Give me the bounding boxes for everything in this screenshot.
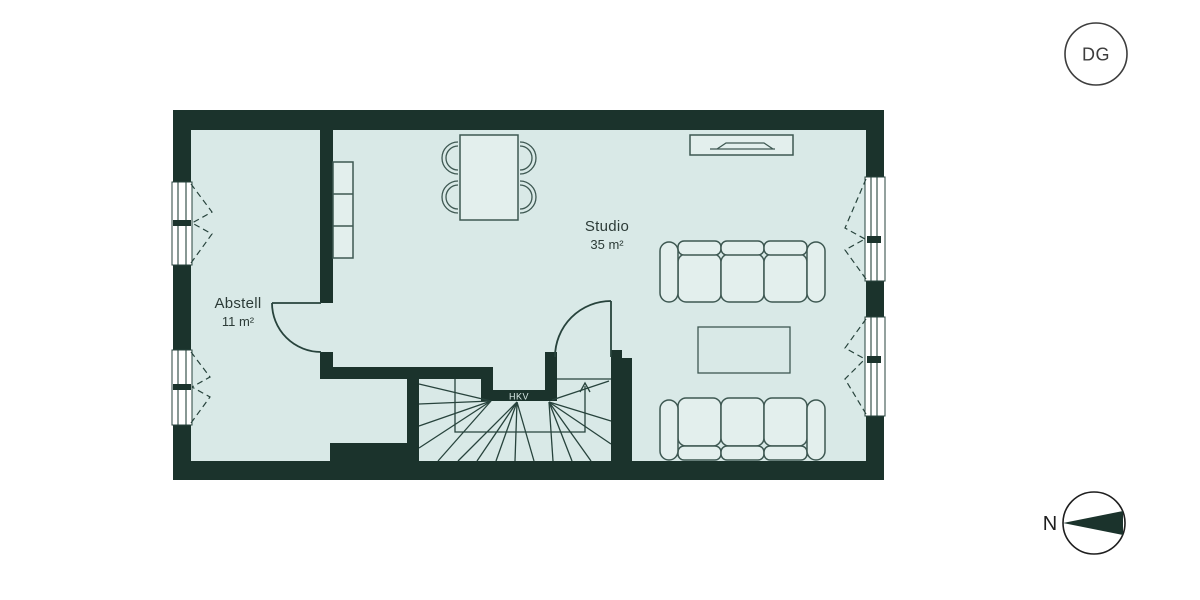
wall-divider-upper xyxy=(320,130,333,303)
sofa-seat-cushion xyxy=(764,254,807,302)
sofa-back-cushion xyxy=(721,241,764,255)
room-name: Abstell xyxy=(214,295,261,312)
sofa-seat-cushion xyxy=(678,254,721,302)
tall-cabinet xyxy=(333,162,353,258)
room-name: Studio xyxy=(585,218,629,235)
sofa-seat-cushion xyxy=(721,254,764,302)
sofa-bottom xyxy=(660,398,825,460)
wall-segment-right xyxy=(866,110,884,480)
window-mullion xyxy=(173,220,191,226)
sofa-seat-cushion xyxy=(721,398,764,446)
window-mullion xyxy=(867,356,881,363)
sofa-armrest xyxy=(807,242,825,302)
sofa-seat-cushion xyxy=(678,398,721,446)
wall-segment-bottom xyxy=(173,461,884,480)
sofa-back-cushion xyxy=(764,446,807,460)
floor-plan-canvas: HKV xyxy=(0,0,1200,600)
sofa-back-cushion xyxy=(764,241,807,255)
sideboard-tv xyxy=(690,135,793,155)
floor-badge-label: DG xyxy=(1082,45,1110,65)
sofa-armrest xyxy=(660,242,678,302)
sofa-back-cushion xyxy=(678,241,721,255)
room-area: 11 m² xyxy=(222,314,255,329)
floor-badge: DG xyxy=(1065,23,1127,85)
sofa-seat-cushion xyxy=(764,398,807,446)
north-label: N xyxy=(1043,513,1057,535)
wall-stair-top xyxy=(320,367,493,379)
sofa-back-cushion xyxy=(721,446,764,460)
compass: N xyxy=(1043,492,1125,554)
wall-door-jamb xyxy=(545,352,557,401)
wall-segment-top xyxy=(173,110,884,130)
dining-table xyxy=(460,135,518,220)
room-area: 35 m² xyxy=(590,237,624,252)
sofa-top xyxy=(660,241,825,302)
sideboard xyxy=(690,135,793,155)
window-frame xyxy=(865,317,885,416)
cabinet-body xyxy=(333,162,353,258)
window-mullion xyxy=(173,384,191,390)
sofa-armrest xyxy=(807,400,825,460)
window-frame xyxy=(865,177,885,281)
wall-stair-right xyxy=(611,358,632,461)
building: HKV xyxy=(172,110,885,480)
wall-bottom-block xyxy=(330,443,419,461)
sofa-armrest xyxy=(660,400,678,460)
window-mullion xyxy=(867,236,881,243)
sofa-back-cushion xyxy=(678,446,721,460)
hkv-label: HKV xyxy=(509,392,529,402)
